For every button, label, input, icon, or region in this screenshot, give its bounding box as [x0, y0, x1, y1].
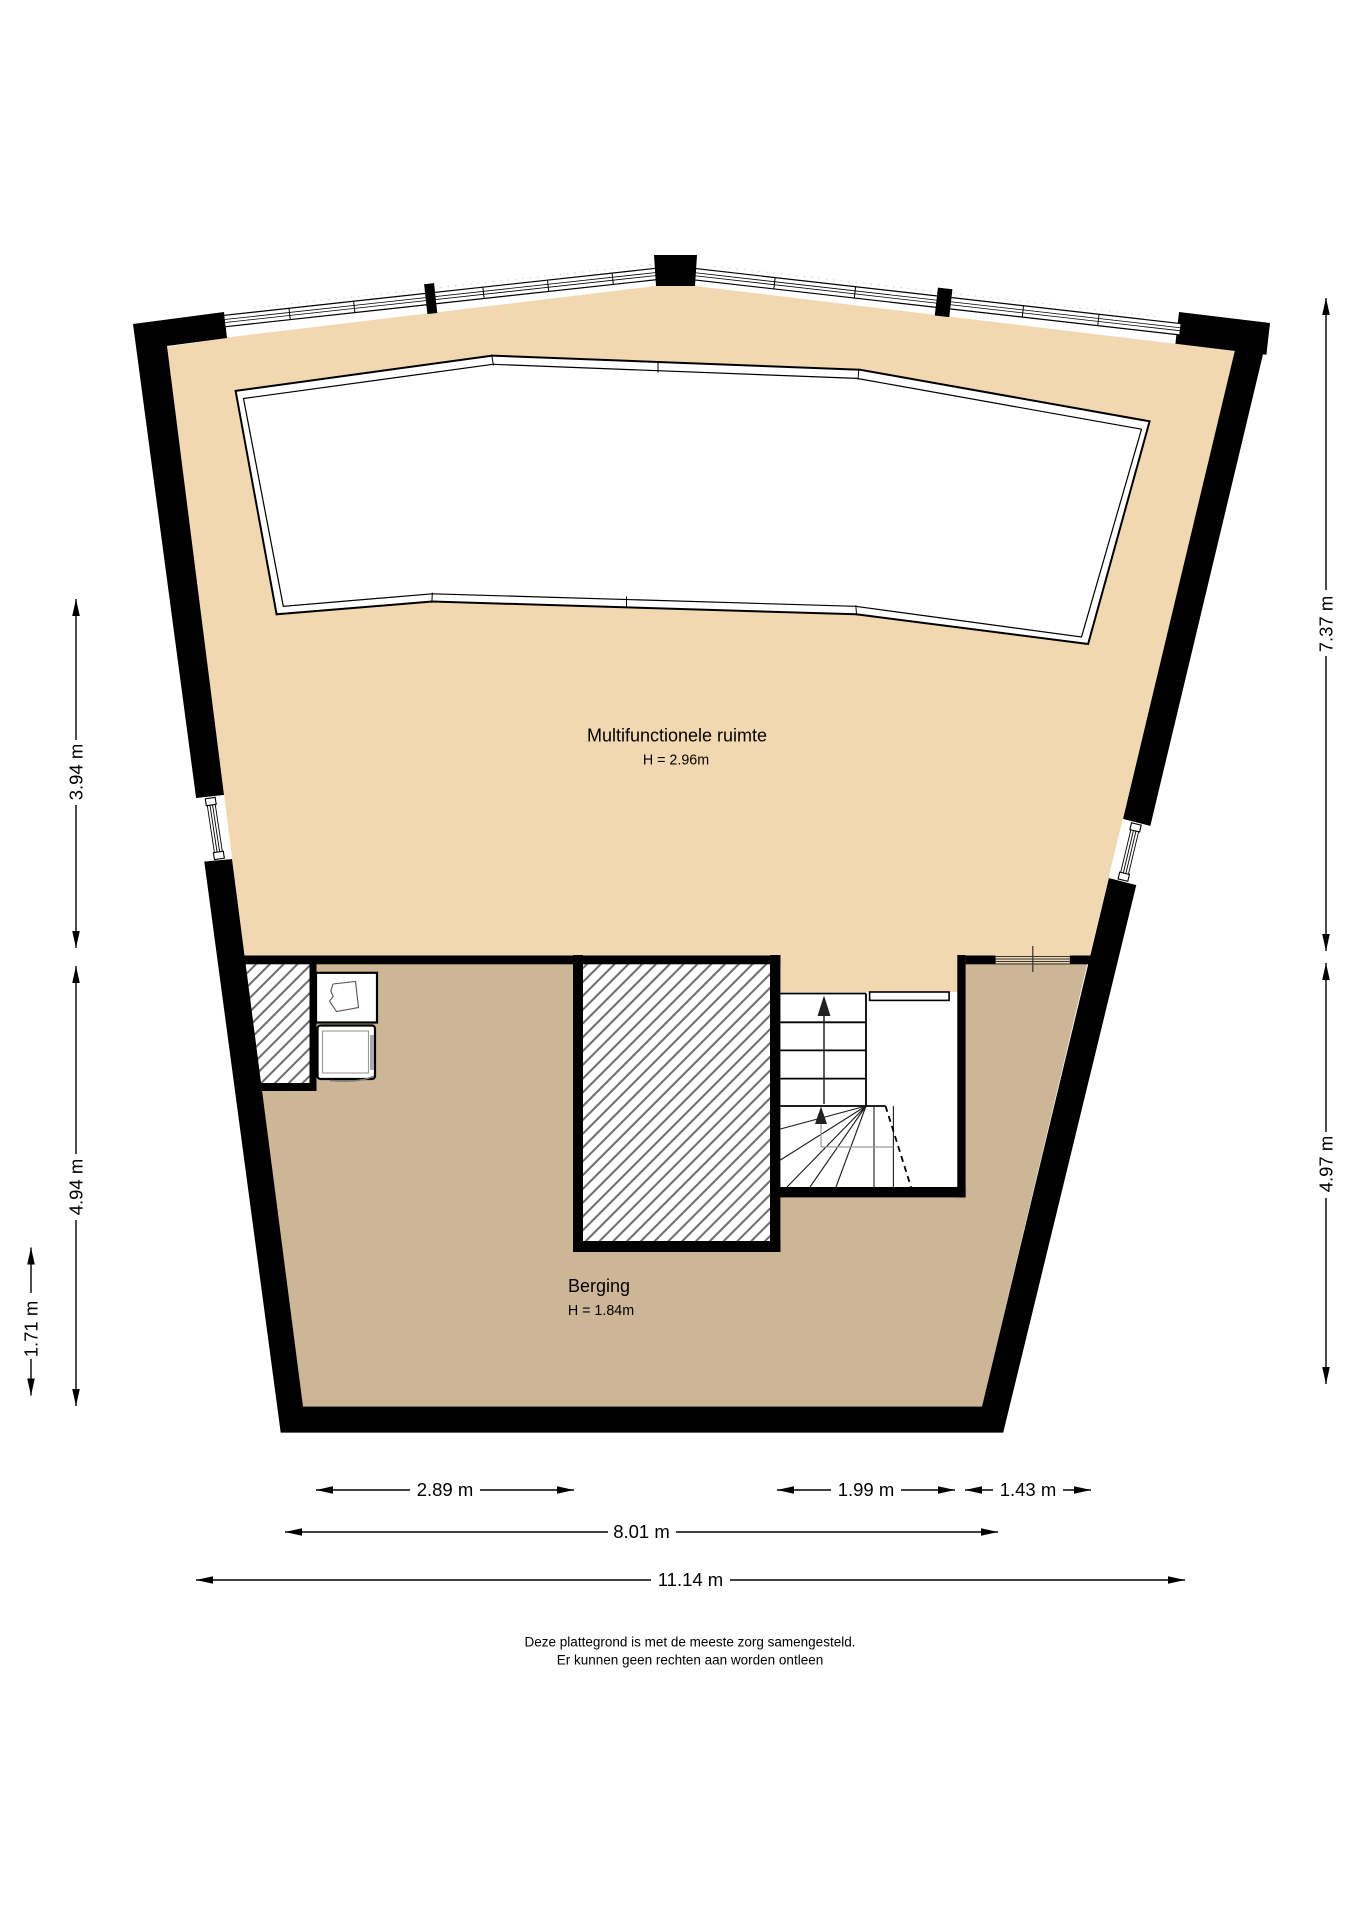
- svg-text:Deze plattegrond is met de mee: Deze plattegrond is met de meeste zorg s…: [525, 1635, 856, 1650]
- svg-text:1.71 m: 1.71 m: [21, 1301, 42, 1358]
- svg-text:Berging: Berging: [568, 1276, 630, 1296]
- svg-text:7.37 m: 7.37 m: [1316, 596, 1337, 653]
- svg-text:1.99 m: 1.99 m: [838, 1479, 895, 1500]
- svg-text:4.94 m: 4.94 m: [66, 1159, 87, 1216]
- svg-text:H = 2.96m: H = 2.96m: [643, 753, 709, 769]
- svg-text:Multifunctionele ruimte: Multifunctionele ruimte: [587, 726, 767, 746]
- svg-text:2.89 m: 2.89 m: [417, 1479, 474, 1500]
- svg-text:11.14 m: 11.14 m: [658, 1569, 723, 1590]
- svg-text:Er kunnen geen rechten aan wor: Er kunnen geen rechten aan worden ontlee…: [557, 1652, 823, 1667]
- svg-text:8.01 m: 8.01 m: [613, 1521, 670, 1542]
- svg-text:3.94 m: 3.94 m: [66, 744, 87, 801]
- svg-text:1.43 m: 1.43 m: [1000, 1479, 1057, 1500]
- svg-text:4.97 m: 4.97 m: [1316, 1136, 1337, 1193]
- svg-text:H = 1.84m: H = 1.84m: [568, 1303, 634, 1319]
